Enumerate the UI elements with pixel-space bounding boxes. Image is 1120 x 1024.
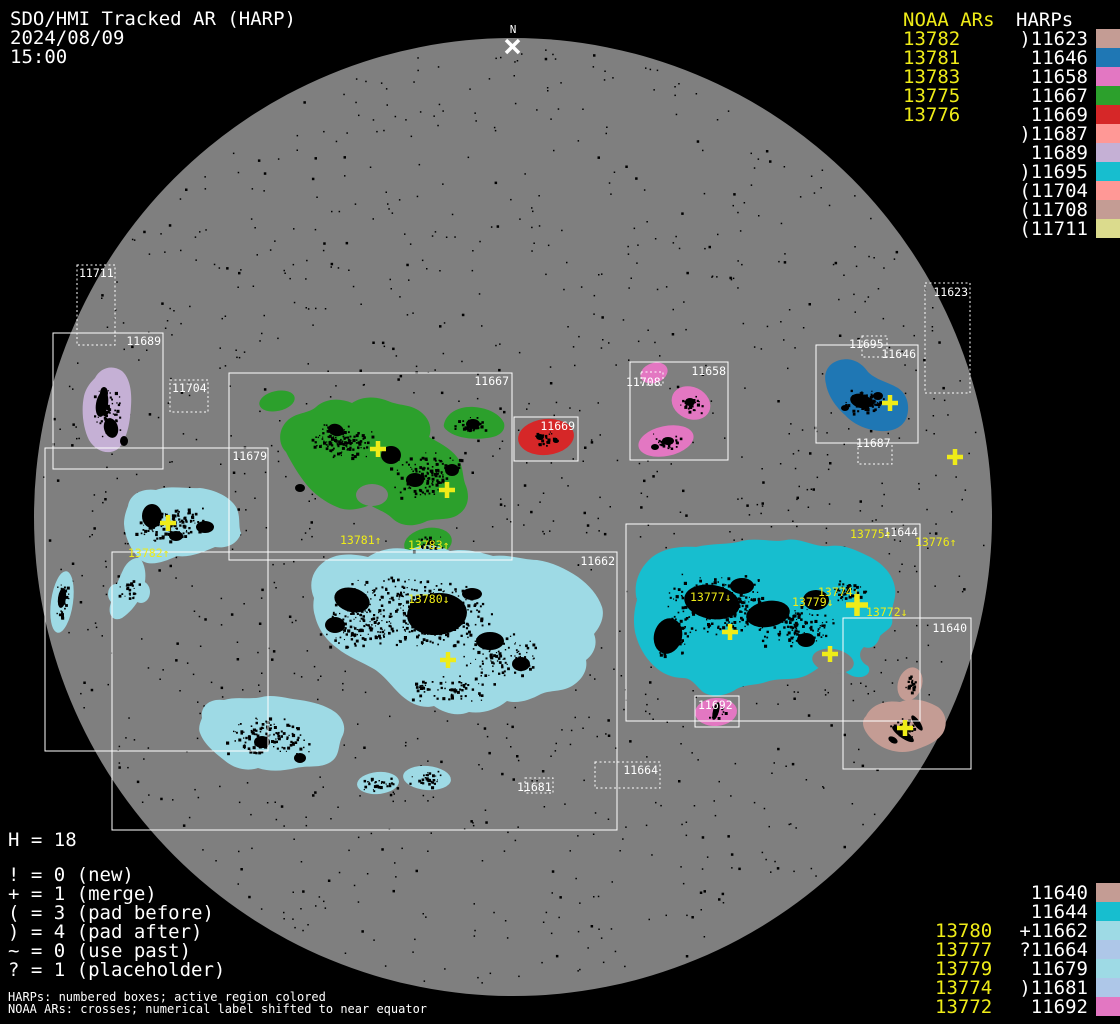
harp-box-label-11704: 11704: [172, 381, 207, 395]
solar-disk-canvas: 1171111689117041167911667116691165811708…: [0, 0, 1120, 1024]
north-pole-label: N: [510, 23, 517, 36]
legend-bottom-color-swatch: [1096, 940, 1120, 959]
plot-time: 15:00: [10, 48, 67, 67]
noaa-ar-label-13777: 13777↓: [690, 590, 732, 604]
legend-bottom-color-swatch: [1096, 902, 1120, 921]
harp-box-label-11658: 11658: [691, 364, 726, 378]
harp-box-label-11689: 11689: [126, 334, 161, 348]
harp-box-label-11695: 11695: [849, 337, 884, 351]
legend-bottom-noaa-value: 13772: [935, 998, 995, 1017]
legend-top-color-swatch: [1096, 181, 1120, 200]
harp-box-label-11623: 11623: [933, 285, 968, 299]
symbol-legend-placeholder: ? = 1 (placeholder): [8, 961, 225, 980]
harp-box-label-11687: 11687: [856, 436, 891, 450]
region-notch: [356, 484, 388, 506]
noaa-ar-label-13774: 13774↓: [818, 585, 860, 599]
harp-tracking-plot: 1171111689117041167911667116691165811708…: [0, 0, 1120, 1024]
legend-top-noaa-value: 13776: [903, 106, 998, 125]
harp-box-label-11708: 11708: [626, 375, 661, 389]
legend-top-color-swatch: [1096, 105, 1120, 124]
harp-box-label-11646: 11646: [881, 347, 916, 361]
harp-box-label-11711: 11711: [79, 266, 114, 280]
legend-bottom-color-swatch: [1096, 883, 1120, 902]
noaa-ar-label-13782: 13782↑: [128, 546, 170, 560]
harp-box-label-11640: 11640: [932, 621, 967, 635]
sunspot-patch: [294, 753, 306, 763]
legend-bottom-harp-value: 11692: [1000, 998, 1088, 1017]
legend-top-harp-value: (11711: [1000, 220, 1088, 239]
noaa-ar-label-13781: 13781↑: [340, 533, 382, 547]
harp-box-label-11679: 11679: [232, 449, 267, 463]
footnote-noaa: NOAA ARs: crosses; numerical label shift…: [8, 1003, 427, 1015]
noaa-ar-label-13783: 13783↑: [408, 538, 450, 552]
legend-bottom-color-swatch: [1096, 997, 1120, 1016]
noaa-ar-label-13775: 13775↑: [850, 527, 892, 541]
legend-top-color-swatch: [1096, 48, 1120, 67]
legend-bottom-color-swatch: [1096, 959, 1120, 978]
harp-box-label-11664: 11664: [623, 763, 658, 777]
noaa-ar-label-13780: 13780↓: [408, 592, 450, 606]
legend-top-color-swatch: [1096, 124, 1120, 143]
noaa-ar-label-13772: 13772↓: [866, 605, 908, 619]
legend-bottom-color-swatch: [1096, 921, 1120, 940]
legend-top-color-swatch: [1096, 86, 1120, 105]
noaa-ar-label-13776: 13776↑: [915, 535, 957, 549]
legend-bottom-color-swatch: [1096, 978, 1120, 997]
legend-top-color-swatch: [1096, 143, 1120, 162]
legend-top-color-swatch: [1096, 200, 1120, 219]
harp-box-label-11692: 11692: [698, 698, 733, 712]
legend-top-color-swatch: [1096, 29, 1120, 48]
sunspot-patch: [295, 484, 305, 492]
harp-box-label-11667: 11667: [474, 374, 509, 388]
sunspot-patch: [120, 436, 128, 446]
legend-top-color-swatch: [1096, 219, 1120, 238]
harp-box-label-11669: 11669: [540, 419, 575, 433]
harp-count: H = 18: [8, 831, 77, 850]
legend-top-color-swatch: [1096, 162, 1120, 181]
harp-box-label-11662: 11662: [580, 554, 615, 568]
sunspot-patch: [651, 444, 659, 450]
harp-box-label-11681: 11681: [517, 780, 552, 794]
legend-top-color-swatch: [1096, 67, 1120, 86]
